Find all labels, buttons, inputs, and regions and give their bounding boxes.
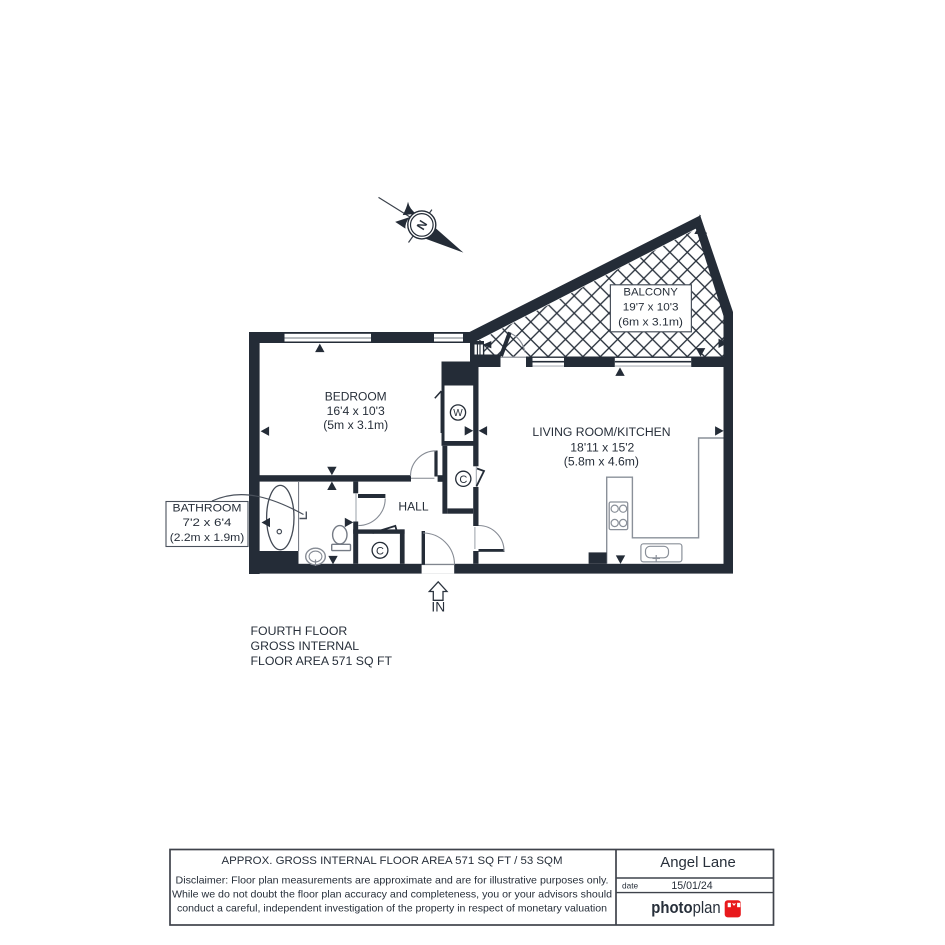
svg-text:7'2 x 6'4: 7'2 x 6'4	[183, 517, 232, 529]
svg-text:18'11 x 15'2: 18'11 x 15'2	[570, 440, 634, 454]
svg-text:W: W	[453, 408, 463, 419]
svg-text:conduct a careful, independent: conduct a careful, independent investiga…	[177, 904, 607, 915]
svg-text:While we do not doubt the floo: While we do not doubt the floor plan acc…	[172, 890, 612, 901]
svg-text:BALCONY: BALCONY	[623, 286, 678, 298]
svg-text:FOURTH FLOOR: FOURTH FLOOR	[251, 624, 348, 638]
svg-text:HALL: HALL	[398, 500, 428, 514]
svg-text:LIVING ROOM/KITCHEN: LIVING ROOM/KITCHEN	[532, 425, 670, 439]
svg-text:(2.2m x 1.9m): (2.2m x 1.9m)	[170, 532, 245, 544]
svg-text:19'7 x 10'3: 19'7 x 10'3	[623, 302, 679, 314]
svg-text:(5m x 3.1m): (5m x 3.1m)	[323, 418, 388, 432]
svg-text:BATHROOM: BATHROOM	[173, 503, 242, 515]
svg-text:IN: IN	[431, 600, 445, 615]
svg-text:15/01/24: 15/01/24	[671, 880, 712, 892]
svg-text:(5.8m x 4.6m): (5.8m x 4.6m)	[564, 454, 639, 468]
svg-text:APPROX. GROSS INTERNAL FLOOR A: APPROX. GROSS INTERNAL FLOOR AREA 571 SQ…	[222, 855, 563, 867]
svg-text:photoplan: photoplan	[651, 899, 720, 917]
svg-text:Angel Lane: Angel Lane	[660, 854, 736, 871]
svg-text:C: C	[459, 474, 467, 486]
svg-text:C: C	[376, 545, 384, 557]
svg-text:Disclaimer: Floor plan measure: Disclaimer: Floor plan measurements are …	[176, 875, 609, 886]
svg-text:BEDROOM: BEDROOM	[325, 389, 387, 403]
svg-text:GROSS INTERNAL: GROSS INTERNAL	[251, 639, 360, 653]
svg-text:16'4 x 10'3: 16'4 x 10'3	[327, 404, 385, 418]
svg-text:date: date	[622, 881, 639, 891]
svg-text:(6m x 3.1m): (6m x 3.1m)	[618, 317, 683, 329]
svg-text:FLOOR AREA 571 SQ FT: FLOOR AREA 571 SQ FT	[251, 654, 393, 668]
